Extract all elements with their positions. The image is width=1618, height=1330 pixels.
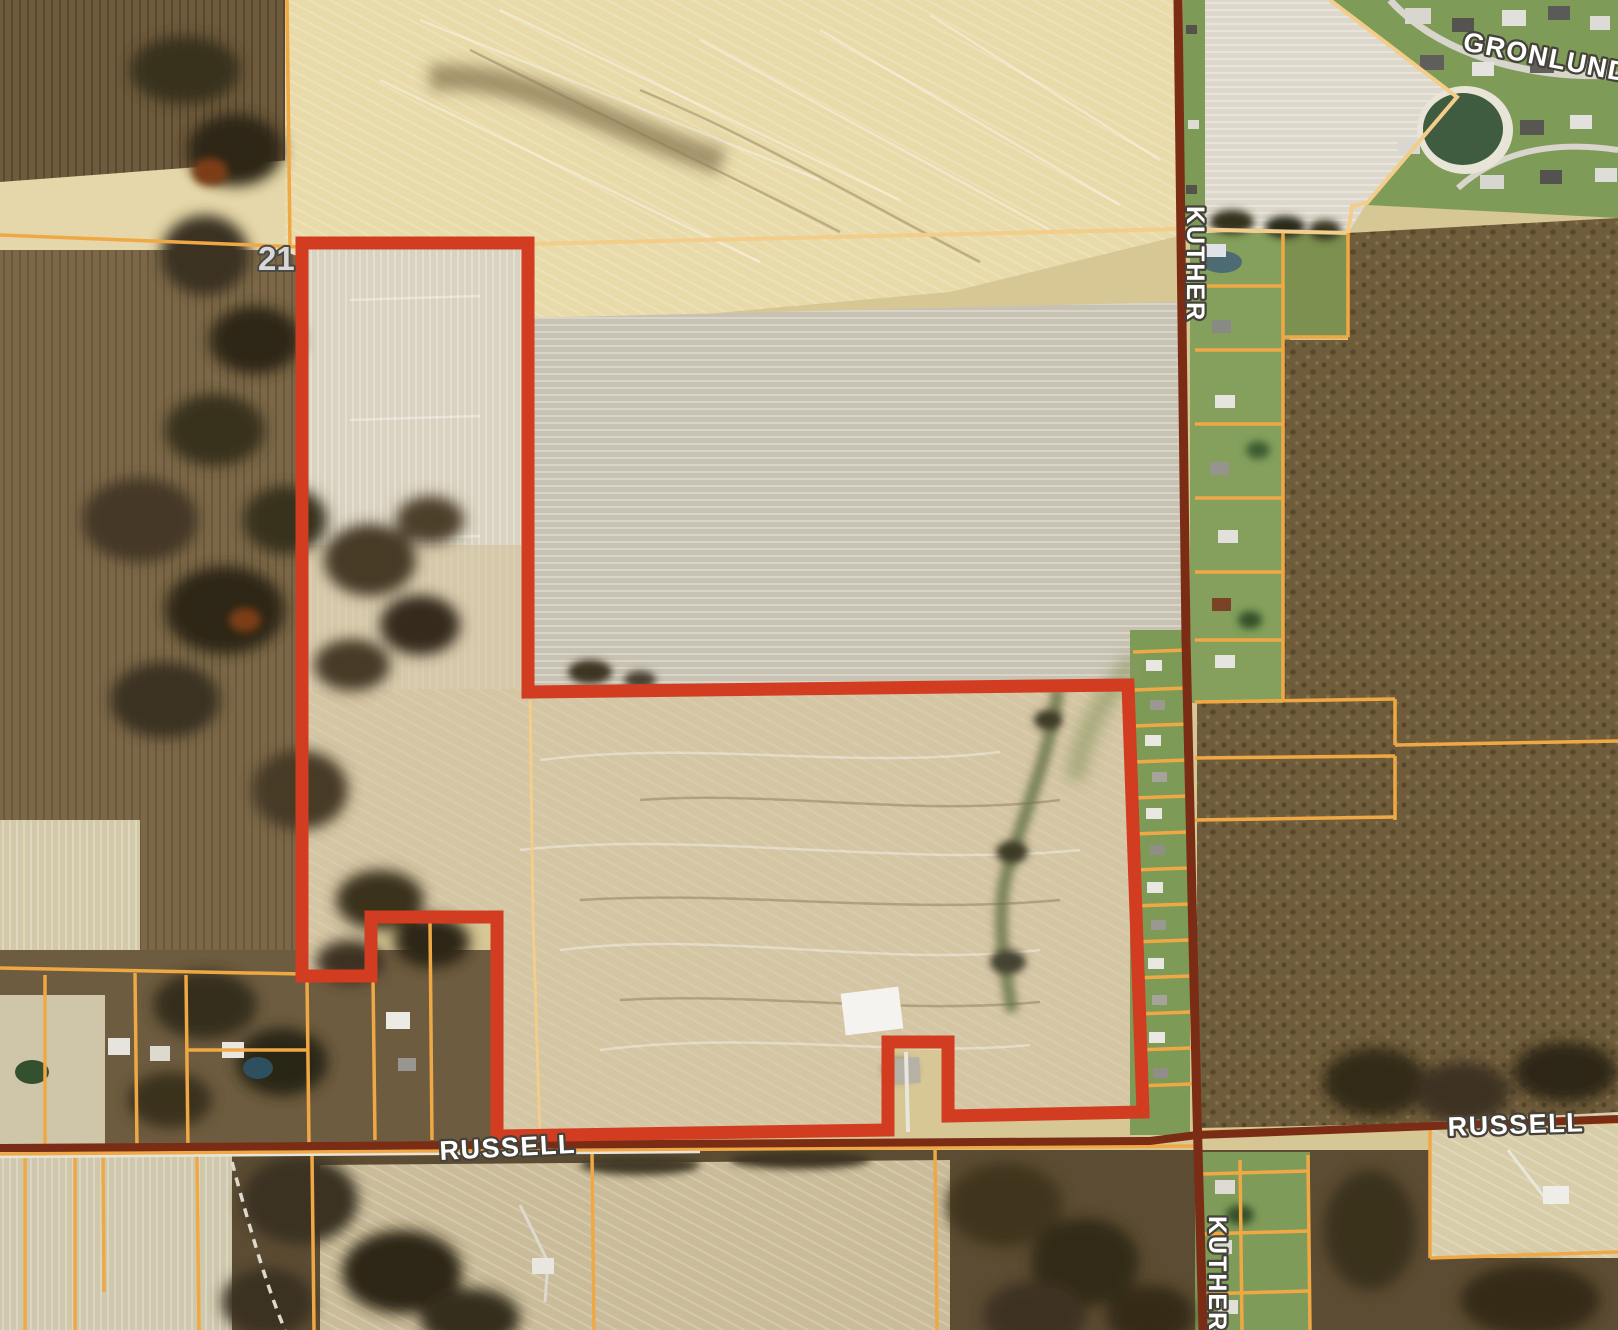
road-label-kuther-south: KUTHER bbox=[1203, 1216, 1231, 1330]
map-viewport[interactable]: 21 GRONLUND KUTHER KUTHER RUSSELL RUSSEL… bbox=[0, 0, 1618, 1330]
aerial-map-canvas[interactable]: 21 GRONLUND KUTHER KUTHER RUSSELL RUSSEL… bbox=[0, 0, 1618, 1330]
road-label-russell-east: RUSSELL bbox=[1447, 1107, 1584, 1142]
road-label-kuther-north: KUTHER bbox=[1181, 206, 1209, 322]
section-number-label: 21 bbox=[258, 240, 295, 277]
